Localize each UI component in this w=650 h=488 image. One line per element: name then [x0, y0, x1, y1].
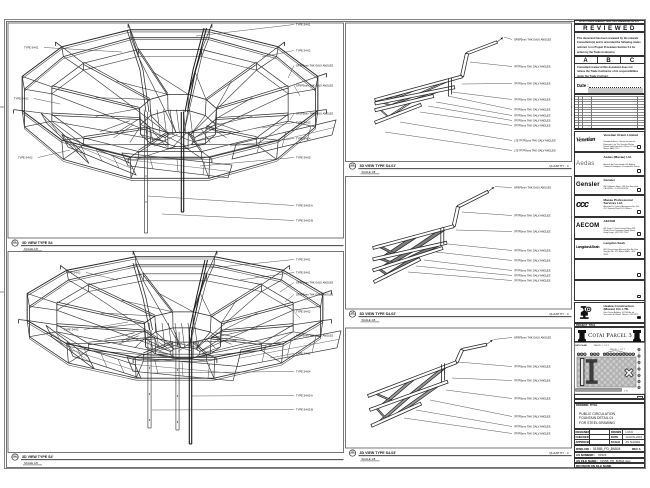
svg-text:SPSP5mm THK GALV ANGLES: SPSP5mm THK GALV ANGLES	[296, 64, 333, 68]
svg-text:7P7P5mm THK GALV ANGLES: 7P7P5mm THK GALV ANGLES	[514, 379, 551, 383]
svg-text:7P7P5mm THK GALV ANGLES: 7P7P5mm THK GALV ANGLES	[514, 397, 551, 401]
svg-text:QUANTITY : 4: QUANTITY : 4	[549, 164, 569, 168]
svg-text:7P7P5mm THK GALV ANGLES: 7P7P5mm THK GALV ANGLES	[514, 269, 551, 273]
svg-text:7P7P5mm THK GALV ANGLES: 7P7P5mm THK GALV ANGLES	[514, 98, 551, 102]
svg-text:7P7P5mm THK GALV ANGLES: 7P7P5mm THK GALV ANGLES	[514, 114, 551, 118]
svg-text:7P7P5mm THK GALV ANGLES: 7P7P5mm THK GALV ANGLES	[514, 259, 551, 263]
svg-text:SCALE 1/8: SCALE 1/8	[24, 461, 38, 465]
svg-text:7P7P5mm THK GALV ANGLES: 7P7P5mm THK GALV ANGLES	[514, 119, 551, 123]
svg-text:PARCEL 1, LOT 2: PARCEL 1, LOT 2	[593, 344, 608, 347]
svg-text:TYPE S4-02: TYPE S4-02	[296, 49, 311, 53]
svg-text:TYPE S4-02: TYPE S4-02	[296, 310, 311, 314]
svg-text:TYPE S4-01: TYPE S4-01	[24, 46, 39, 50]
svg-text:7P7P5mm THK GALV ANGLES: 7P7P5mm THK GALV ANGLES	[514, 82, 551, 86]
svg-text:QUANTITY : 4: QUANTITY : 4	[549, 451, 569, 455]
svg-text:3D VIEW TYPE S4-03': 3D VIEW TYPE S4-03'	[360, 451, 397, 455]
svg-text:SPSP5mm THK GALV ANGLES: SPSP5mm THK GALV ANGLES	[514, 38, 551, 42]
svg-text:SCALE 1/8: SCALE 1/8	[362, 457, 376, 461]
svg-text:3D VIEW TYPE S4-01': 3D VIEW TYPE S4-01'	[360, 164, 397, 168]
svg-text:TYPE S4-04: TYPE S4-04	[296, 137, 311, 141]
svg-text:7P7P5mm THK GALV ANGLES: 7P7P5mm THK GALV ANGLES	[514, 214, 551, 218]
svg-text:7P7P5mm THK GALV ANGLES: 7P7P5mm THK GALV ANGLES	[514, 365, 551, 369]
svg-text:7P7P5mm THK GALV ANGLES: 7P7P5mm THK GALV ANGLES	[514, 108, 551, 112]
svg-text:7P7P5mm THK GALV ANGLES: 7P7P5mm THK GALV ANGLES	[514, 124, 551, 128]
svg-text:TYPE S4-01: TYPE S4-01	[296, 271, 311, 275]
svg-text:TYPE S4-01: TYPE S4-01	[296, 258, 311, 262]
svg-text:SPSP5mm THK GALV ANGLES: SPSP5mm THK GALV ANGLES	[296, 334, 333, 338]
svg-text:7P7P5mm THK GALV ANGLES: 7P7P5mm THK GALV ANGLES	[514, 249, 551, 253]
svg-text:7P7P5mm THK GALV ANGLES: 7P7P5mm THK GALV ANGLES	[514, 425, 551, 429]
svg-text:SCALE 1/8: SCALE 1/8	[24, 247, 38, 251]
svg-text:TYPE S4-05: TYPE S4-05	[296, 156, 311, 160]
svg-text:TYPE S4-04: TYPE S4-04	[296, 370, 311, 374]
svg-text:7P7P5mm THK GALV ANGLES: 7P7P5mm THK GALV ANGLES	[514, 432, 551, 436]
svg-text:7P7P5mm THK GALV ANGLES: 7P7P5mm THK GALV ANGLES	[514, 279, 551, 283]
svg-text:TYPE S4-03: TYPE S4-03	[296, 352, 311, 356]
svg-text:TYPE S4-02: TYPE S4-02	[14, 97, 29, 101]
svg-text:SPSP5mm THK GALV ANGLES: SPSP5mm THK GALV ANGLES	[296, 293, 333, 297]
svg-text:KEY PLAN: KEY PLAN	[575, 344, 586, 347]
svg-text:L75 7P7P5mm THK GALV ANGLES: L75 7P7P5mm THK GALV ANGLES	[514, 139, 556, 143]
svg-text:TYPE S4-03: TYPE S4-03	[296, 121, 311, 125]
svg-text:SCALE 1/8: SCALE 1/8	[362, 170, 376, 174]
svg-text:TYPE S4-02: TYPE S4-02	[66, 271, 81, 275]
svg-text:TYPE S4-02: TYPE S4-02	[64, 328, 79, 332]
svg-text:3D VIEW TYPE S4: 3D VIEW TYPE S4	[22, 241, 53, 245]
svg-text:TYPE S4-05 A: TYPE S4-05 A	[296, 394, 313, 398]
svg-text:SPSP5mm THK GALV ANGLES: SPSP5mm THK GALV ANGLES	[514, 186, 551, 190]
svg-text:7P7P5mm THK GALV ANGLES: 7P7P5mm THK GALV ANGLES	[514, 65, 551, 69]
svg-text:TYPE S4-01: TYPE S4-01	[296, 23, 311, 27]
svg-text:SPSP5mm THK GALV ANGLES: SPSP5mm THK GALV ANGLES	[296, 281, 333, 285]
svg-text:7P7P5mm THK GALV ANGLES: 7P7P5mm THK GALV ANGLES	[514, 415, 551, 419]
svg-text:3D VIEW TYPE S4': 3D VIEW TYPE S4'	[22, 455, 54, 459]
svg-text:TYPE S4-05 B: TYPE S4-05 B	[296, 408, 313, 412]
svg-text:SPSP5mm THK GALV ANGLES: SPSP5mm THK GALV ANGLES	[514, 336, 551, 340]
svg-text:TYPE S4-02: TYPE S4-02	[18, 156, 33, 160]
svg-text:SPSP5mm THK GALV ANGLES: SPSP5mm THK GALV ANGLES	[296, 84, 333, 88]
svg-text:L75 7P7P5mm THK GALV ANGLES: L75 7P7P5mm THK GALV ANGLES	[514, 149, 556, 153]
svg-text:SPSP5mm THK GALV ANGLES: SPSP5mm THK GALV ANGLES	[296, 112, 333, 116]
svg-text:QUANTITY : 4: QUANTITY : 4	[549, 312, 569, 316]
svg-text:7P7P5mm THK GALV ANGLES: 7P7P5mm THK GALV ANGLES	[514, 274, 551, 278]
svg-text:SCALE 1/8: SCALE 1/8	[362, 318, 376, 322]
svg-text:7P7P5mm THK GALV ANGLES: 7P7P5mm THK GALV ANGLES	[514, 230, 551, 234]
svg-text:3D VIEW TYPE S4-02': 3D VIEW TYPE S4-02'	[360, 312, 397, 316]
svg-text:TYPE S4-05 B: TYPE S4-05 B	[296, 219, 313, 223]
svg-text:TYPE S4-05 A: TYPE S4-05 A	[296, 204, 313, 208]
